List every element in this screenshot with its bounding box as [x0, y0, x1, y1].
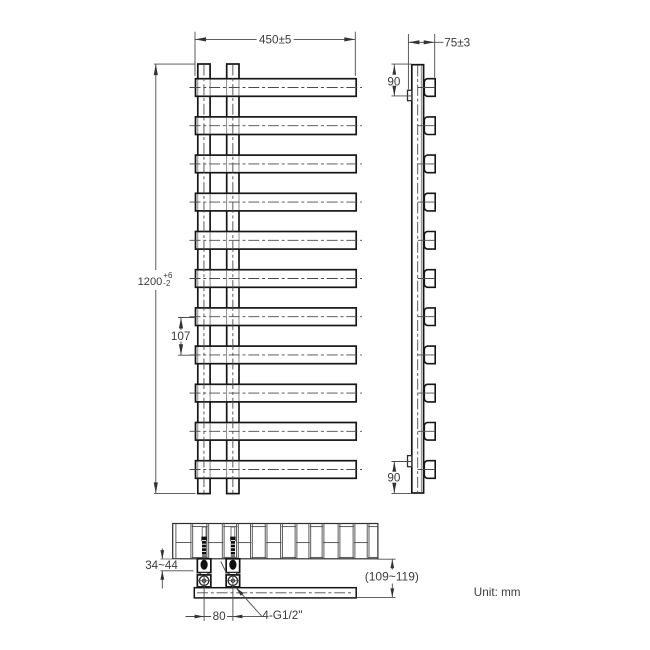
svg-text:4-G1/2": 4-G1/2" — [262, 608, 302, 622]
svg-text:34~44: 34~44 — [145, 559, 178, 572]
svg-text:75±3: 75±3 — [444, 37, 470, 50]
svg-text:1200: 1200 — [138, 276, 163, 288]
svg-text:90: 90 — [387, 472, 401, 485]
svg-text:Unit: mm: Unit: mm — [474, 586, 521, 599]
svg-text:90: 90 — [387, 75, 401, 88]
svg-text:80: 80 — [213, 610, 227, 623]
svg-text:450±5: 450±5 — [259, 33, 292, 46]
svg-text:107: 107 — [171, 330, 191, 343]
svg-text:-2: -2 — [163, 279, 171, 288]
svg-text:(109~119): (109~119) — [365, 570, 419, 584]
